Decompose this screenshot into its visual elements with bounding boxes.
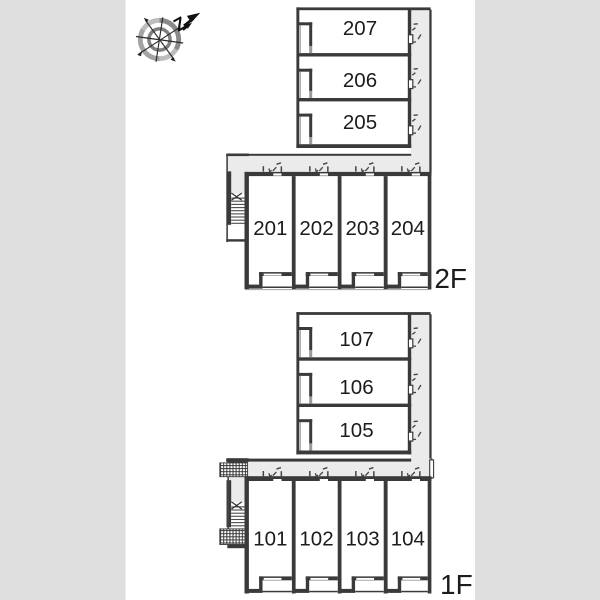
- svg-text:205: 205: [343, 111, 377, 134]
- svg-text:203: 203: [345, 217, 379, 240]
- svg-text:207: 207: [343, 17, 377, 40]
- svg-text:1F: 1F: [440, 569, 473, 600]
- svg-text:102: 102: [299, 528, 333, 551]
- svg-text:204: 204: [391, 217, 425, 240]
- svg-text:101: 101: [253, 528, 287, 551]
- svg-text:103: 103: [345, 528, 379, 551]
- svg-text:104: 104: [391, 528, 425, 551]
- svg-text:202: 202: [299, 217, 333, 240]
- svg-text:107: 107: [339, 328, 373, 351]
- svg-text:105: 105: [339, 419, 373, 442]
- svg-text:2F: 2F: [434, 263, 467, 294]
- svg-text:206: 206: [343, 69, 377, 92]
- svg-text:106: 106: [339, 376, 373, 399]
- svg-text:201: 201: [253, 217, 287, 240]
